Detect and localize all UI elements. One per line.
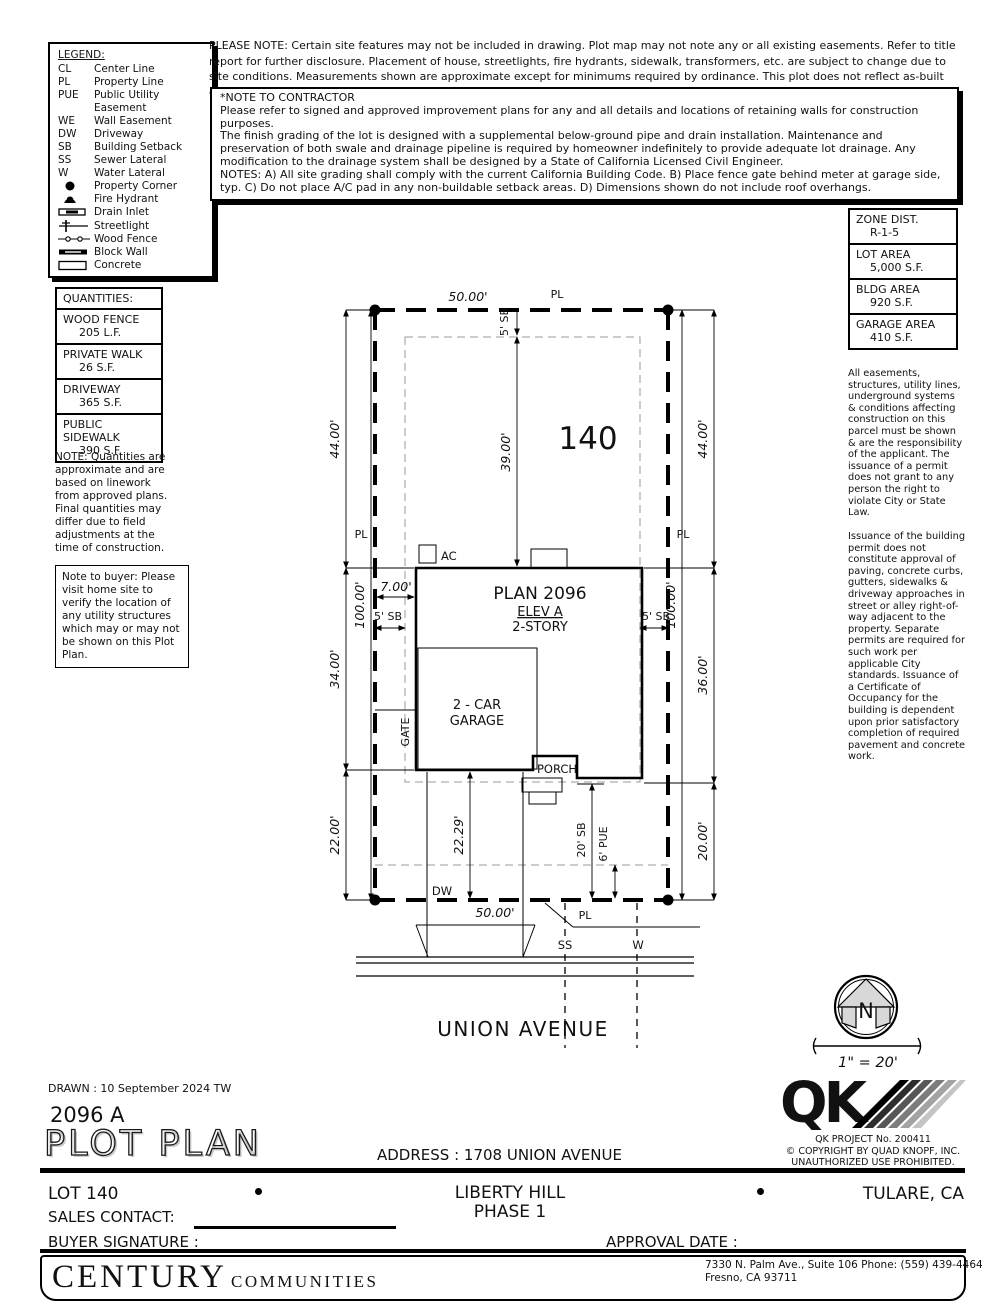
- legend-item: Property Corner: [58, 180, 206, 193]
- dim-lot-width-top: 50.00': [448, 289, 487, 304]
- builder-suffix: COMMUNITIES: [231, 1272, 378, 1291]
- ss-label: SS: [558, 938, 573, 952]
- dim-right-20: 20.00': [695, 821, 710, 860]
- zone-row: LOT AREA5,000 S.F.: [850, 245, 956, 280]
- street-name: UNION AVENUE: [437, 1017, 609, 1041]
- site-plan-drawing: 50.00' PL 44.00' 34.00' 22.00' 100.00' 4…: [325, 283, 755, 1058]
- drawn-date: DRAWN : 10 September 2024 TW: [48, 1082, 231, 1095]
- zone-table: ZONE DIST.R-1-5 LOT AREA5,000 S.F. BLDG …: [848, 208, 958, 350]
- legend-item: PLProperty Line: [58, 76, 206, 89]
- qk-copyright: © COPYRIGHT BY QUAD KNOPF, INC.: [782, 1146, 964, 1158]
- porch-step: [529, 792, 556, 804]
- centerline-symbol: CL: [58, 63, 94, 76]
- fire-hydrant-icon: [58, 193, 88, 205]
- rear-setback-label: 20' SB: [575, 822, 588, 857]
- pue-symbol: PUE: [58, 89, 94, 102]
- builder-logo: CENTURY COMMUNITIES: [52, 1259, 378, 1296]
- wood-fence-icon: [58, 234, 90, 244]
- qk-project-number: QK PROJECT No. 200411: [782, 1134, 964, 1146]
- walleasement-symbol: WE: [58, 115, 94, 128]
- elevation-label: ELEV A: [517, 605, 563, 620]
- zone-row: BLDG AREA920 S.F.: [850, 280, 956, 315]
- contractor-note-p3: NOTES: A) All site grading shall comply …: [220, 169, 949, 195]
- garage-label-1: 2 - CAR: [453, 698, 501, 713]
- concrete-icon: [58, 260, 90, 271]
- property-corner-icon: [58, 180, 88, 192]
- sales-contact-line[interactable]: [194, 1226, 396, 1229]
- quantities-row: WOOD FENCE205 L.F.: [57, 310, 161, 345]
- dim-left-34: 34.00': [327, 649, 342, 688]
- legend-item: Wood Fence: [58, 233, 206, 246]
- quantities-note: NOTE: Quantities are approximate and are…: [55, 451, 177, 555]
- legend-item: WWater Lateral: [58, 167, 206, 180]
- legend-item: Fire Hydrant: [58, 193, 206, 206]
- dim-7: 7.00': [380, 579, 411, 594]
- scale-text: 1" = 20': [838, 1055, 898, 1070]
- roof-bump: [531, 549, 567, 568]
- qk-prohibited: UNAUTHORIZED USE PROHIBITED.: [782, 1157, 964, 1169]
- driveway-symbol: DW: [58, 128, 94, 141]
- porch-label: PORCH: [537, 762, 577, 776]
- ac-label: AC: [441, 549, 457, 563]
- bullet-separator: [757, 1188, 764, 1195]
- sheet-title: PLOT PLAN: [44, 1124, 262, 1164]
- dim-right-44: 44.00': [695, 419, 710, 458]
- contractor-note-p1: Please refer to signed and approved impr…: [220, 105, 949, 131]
- easements-note: All easements, structures, utility lines…: [848, 368, 964, 519]
- contractor-note-title: *NOTE TO CONTRACTOR: [220, 92, 949, 105]
- setback-symbol: SB: [58, 141, 94, 154]
- pl-leader: [545, 903, 700, 927]
- north-compass: N 1" = 20': [806, 968, 936, 1070]
- legend-title: LEGEND:: [58, 49, 206, 62]
- plan-label: PLAN 2096: [493, 584, 586, 604]
- legend-item: Concrete: [58, 259, 206, 272]
- sales-contact-label: SALES CONTACT:: [48, 1208, 175, 1226]
- dim-left-100: 100.00': [352, 581, 367, 628]
- dim-left-22: 22.00': [327, 815, 342, 854]
- contractor-note-box: *NOTE TO CONTRACTOR Please refer to sign…: [210, 87, 959, 201]
- water-symbol: W: [58, 167, 94, 180]
- site-address: ADDRESS : 1708 UNION AVENUE: [377, 1146, 622, 1164]
- legend-box: LEGEND: CLCenter Line PLProperty Line PU…: [48, 42, 214, 278]
- legend-item: WEWall Easement: [58, 115, 206, 128]
- dw-label: DW: [432, 884, 452, 898]
- dim-center-39: 39.00': [498, 432, 513, 471]
- contractor-note-p2: The finish grading of the lot is designe…: [220, 130, 949, 168]
- buyer-note-box: Note to buyer: Please visit home site to…: [55, 565, 189, 668]
- legend-item: Block Wall: [58, 246, 206, 259]
- pl-label-top: PL: [551, 288, 565, 301]
- builder-address: 7330 N. Palm Ave., Suite 106 Phone: (559…: [705, 1259, 983, 1285]
- community-name: LIBERTY HILL PHASE 1: [420, 1184, 600, 1222]
- gate-label: GATE: [399, 718, 412, 747]
- ac-pad: [419, 545, 436, 563]
- footer-top-bar: [40, 1249, 966, 1253]
- dim-center-2229: 22.29': [451, 815, 466, 854]
- block-wall-icon: [58, 247, 90, 257]
- legend-item: DWDriveway: [58, 128, 206, 141]
- streetlight-icon: [58, 219, 90, 233]
- pl-label-bottom: PL: [579, 909, 593, 922]
- svg-text:QK: QK: [780, 1072, 870, 1132]
- propertyline-symbol: PL: [58, 76, 94, 89]
- porch-step: [522, 778, 562, 792]
- story-label: 2-STORY: [512, 620, 568, 635]
- bullet-separator: [255, 1188, 262, 1195]
- divider-bar: [40, 1168, 965, 1173]
- dim-left-44: 44.00': [327, 419, 342, 458]
- dim-right-36: 36.00': [695, 655, 710, 694]
- legend-item: Drain Inlet: [58, 206, 206, 219]
- drain-inlet-icon: [58, 206, 90, 218]
- sidewalk-curb-lines: [356, 957, 694, 976]
- phase-label: PHASE 1: [420, 1203, 600, 1222]
- north-letter: N: [858, 999, 874, 1023]
- pl-label-right: PL: [677, 528, 691, 541]
- sewer-symbol: SS: [58, 154, 94, 167]
- side-setback-right: 5' SB: [642, 610, 670, 623]
- plot-plan-page: LEGEND: CLCenter Line PLProperty Line PU…: [0, 0, 1006, 1305]
- dim-lot-width-bottom: 50.00': [475, 905, 514, 920]
- quantities-row: PRIVATE WALK26 S.F.: [57, 345, 161, 380]
- builder-name: CENTURY: [52, 1259, 227, 1295]
- quantities-row: DRIVEWAY365 S.F.: [57, 380, 161, 415]
- garage-label-2: GARAGE: [450, 714, 504, 729]
- pue-label: 6' PUE: [597, 826, 610, 861]
- lot-number: 140: [558, 421, 617, 457]
- quantities-table: QUANTITIES: WOOD FENCE205 L.F. PRIVATE W…: [55, 287, 163, 463]
- city-label: TULARE, CA: [830, 1184, 964, 1204]
- lot-label: LOT 140: [48, 1184, 118, 1204]
- legend-item: Streetlight: [58, 219, 206, 233]
- qk-caption: QK PROJECT No. 200411 © COPYRIGHT BY QUA…: [782, 1134, 964, 1169]
- pl-label-left: PL: [355, 528, 369, 541]
- permit-note: Issuance of the building permit does not…: [848, 531, 966, 763]
- quantities-title: QUANTITIES:: [57, 289, 161, 310]
- side-setback-left: 5' SB: [374, 610, 402, 623]
- legend-item: SSSewer Lateral: [58, 154, 206, 167]
- front-setback-label: 5' SB: [498, 308, 511, 336]
- legend-item: SBBuilding Setback: [58, 141, 206, 154]
- zone-row: ZONE DIST.R-1-5: [850, 210, 956, 245]
- legend-item: CLCenter Line: [58, 63, 206, 76]
- legend-item: PUEPublic Utility Easement: [58, 89, 206, 115]
- zone-row: GARAGE AREA410 S.F.: [850, 315, 956, 348]
- qk-logo: QK: [780, 1072, 966, 1132]
- w-label: W: [632, 938, 643, 952]
